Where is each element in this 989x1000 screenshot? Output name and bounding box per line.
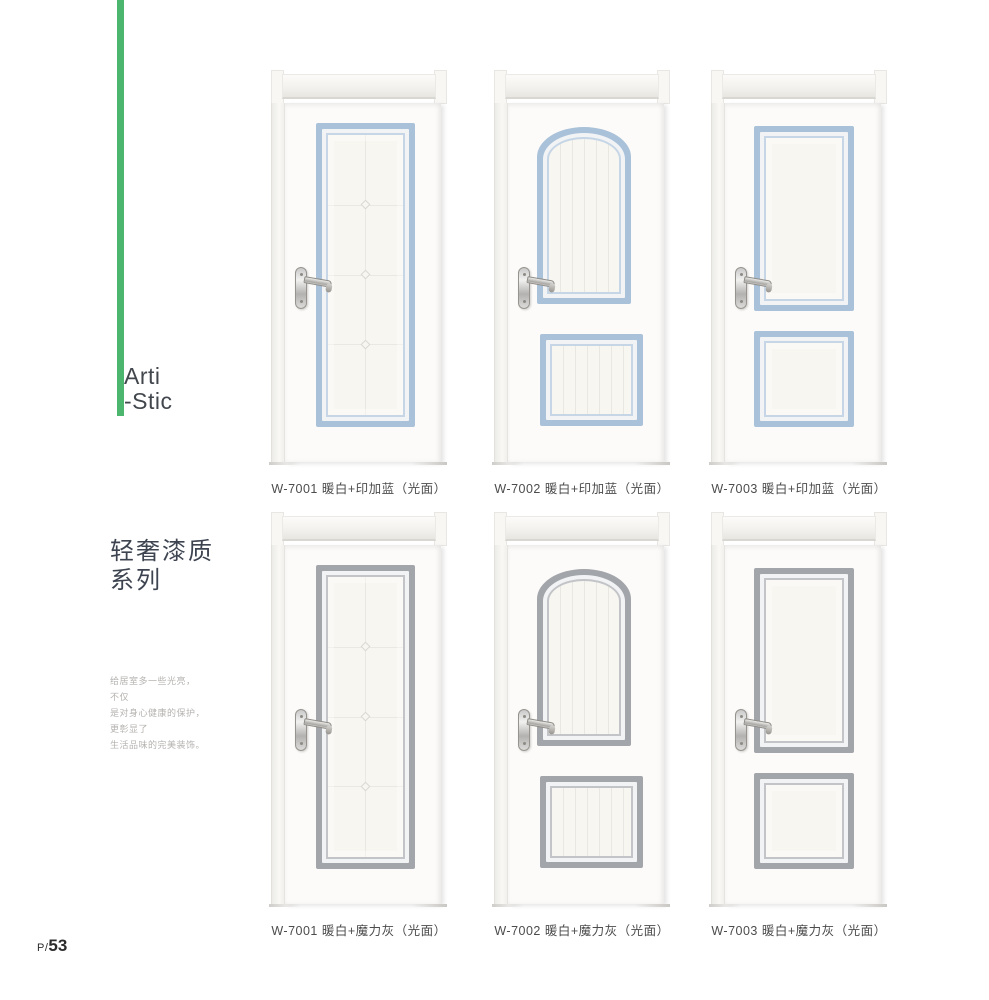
series-title: 轻奢漆质 系列 <box>110 537 214 595</box>
handle-backplate <box>295 709 307 751</box>
door-caption: W-7002 暖白+魔力灰（光面） <box>466 920 698 939</box>
panel-diamond-accent <box>360 200 370 210</box>
door-frame-jamb <box>711 545 725 904</box>
panel-diamond-accent <box>360 642 370 652</box>
brand-line1: Arti <box>124 364 173 389</box>
handle-lever <box>526 718 555 730</box>
door-leaf <box>725 103 881 462</box>
door-image-w7003-gray <box>703 508 895 908</box>
brand-logo: Arti -Stic <box>124 364 173 414</box>
door-leaf <box>285 545 441 904</box>
door-caption: W-7003 暖白+魔力灰（光面） <box>683 920 915 939</box>
handle-backplate <box>295 267 307 309</box>
handle-lever <box>743 276 772 288</box>
description-line: 生活品味的完美装饰。 <box>110 737 205 753</box>
door-panel-lower <box>540 776 643 868</box>
door-frame-head <box>282 516 436 541</box>
floor-shadow <box>492 462 670 465</box>
floor-shadow <box>709 462 887 465</box>
door-image-w7002-blue <box>486 66 678 466</box>
door-handle <box>518 709 564 757</box>
door-leaf <box>508 103 664 462</box>
door-handle <box>735 267 781 315</box>
door-panel-lower <box>540 334 643 426</box>
door-frame-jamb <box>271 103 285 462</box>
handle-backplate <box>735 709 747 751</box>
handle-lever <box>303 718 332 730</box>
series-title-line1: 轻奢漆质 <box>110 537 214 566</box>
door-frame-jamb <box>494 103 508 462</box>
door-image-w7001-blue <box>263 66 455 466</box>
door-frame-jamb <box>711 103 725 462</box>
door-leaf <box>508 545 664 904</box>
floor-shadow <box>492 904 670 907</box>
page-number-value: 53 <box>48 936 67 955</box>
description-line: 不仅 <box>110 689 205 705</box>
door-caption: W-7001 暖白+印加蓝（光面） <box>243 478 475 497</box>
door-panel-lower <box>754 331 854 427</box>
door-image-w7001-gray <box>263 508 455 908</box>
door-panel-lower <box>754 773 854 869</box>
door-handle <box>735 709 781 757</box>
door-handle <box>295 709 341 757</box>
door-image-w7003-blue <box>703 66 895 466</box>
handle-backplate <box>518 709 530 751</box>
page-number: P/53 <box>37 936 67 956</box>
door-frame-jamb <box>271 545 285 904</box>
panel-diamond-accent <box>360 340 370 350</box>
door-leaf <box>285 103 441 462</box>
panel-diamond-accent <box>360 712 370 722</box>
series-description: 给居室多一些光亮， 不仅 是对身心健康的保护， 更彰显了 生活品味的完美装饰。 <box>110 673 205 753</box>
handle-backplate <box>735 267 747 309</box>
brand-line2: -Stic <box>124 389 173 414</box>
door-image-w7002-gray <box>486 508 678 908</box>
floor-shadow <box>709 904 887 907</box>
floor-shadow <box>269 462 447 465</box>
door-caption: W-7002 暖白+印加蓝（光面） <box>466 478 698 497</box>
series-title-line2: 系列 <box>110 566 214 595</box>
handle-backplate <box>518 267 530 309</box>
panel-diamond-accent <box>360 782 370 792</box>
door-frame-jamb <box>494 545 508 904</box>
description-line: 给居室多一些光亮， <box>110 673 205 689</box>
door-caption: W-7001 暖白+魔力灰（光面） <box>243 920 475 939</box>
door-frame-head <box>505 74 659 99</box>
handle-lever <box>743 718 772 730</box>
door-frame-head <box>282 74 436 99</box>
handle-lever <box>526 276 555 288</box>
door-frame-head <box>722 516 876 541</box>
floor-shadow <box>269 904 447 907</box>
door-handle <box>295 267 341 315</box>
door-frame-head <box>505 516 659 541</box>
handle-lever <box>303 276 332 288</box>
panel-diamond-accent <box>360 270 370 280</box>
door-frame-head <box>722 74 876 99</box>
door-caption: W-7003 暖白+印加蓝（光面） <box>683 478 915 497</box>
door-leaf <box>725 545 881 904</box>
description-line: 是对身心健康的保护， <box>110 705 205 721</box>
description-line: 更彰显了 <box>110 721 205 737</box>
door-handle <box>518 267 564 315</box>
accent-bar <box>117 0 124 416</box>
page-number-prefix: P/ <box>37 942 48 954</box>
